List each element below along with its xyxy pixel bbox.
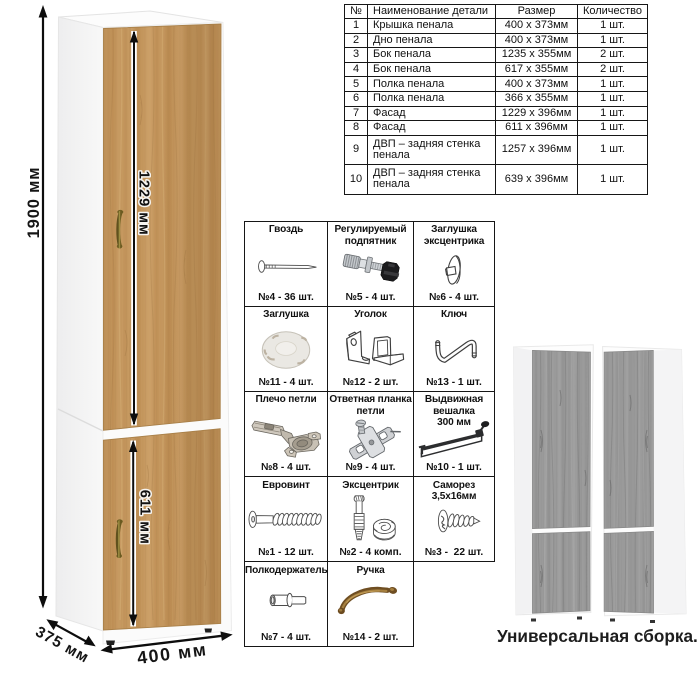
svg-text:1229 мм: 1229 мм (136, 171, 152, 236)
svg-text:375 мм: 375 мм (32, 623, 92, 666)
svg-text:611 мм: 611 мм (136, 490, 152, 545)
svg-text:1900 мм: 1900 мм (24, 167, 43, 239)
svg-text:400 мм: 400 мм (136, 639, 208, 668)
